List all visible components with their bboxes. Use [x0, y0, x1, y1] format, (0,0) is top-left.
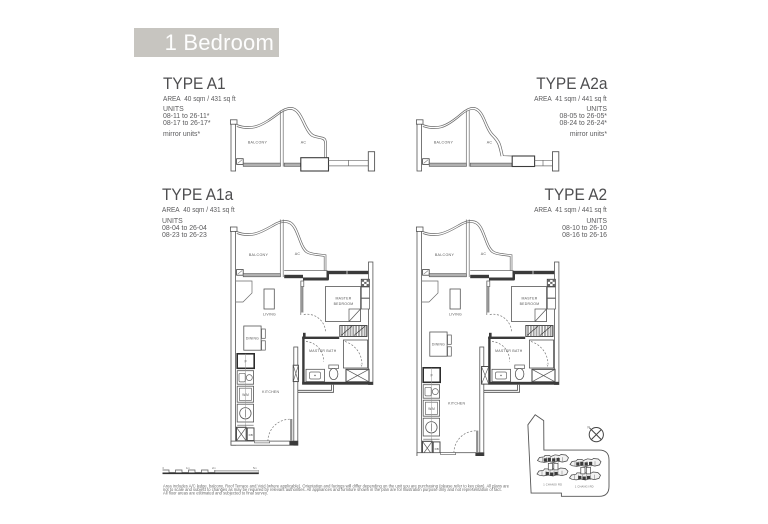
- svg-text:1m: 1m: [186, 466, 190, 470]
- svg-text:MASTER: MASTER: [335, 297, 351, 301]
- svg-text:AC: AC: [481, 252, 487, 256]
- svg-text:MASTER BATH: MASTER BATH: [309, 349, 337, 353]
- svg-text:BALCONY: BALCONY: [435, 253, 455, 257]
- svg-text:2m: 2m: [212, 466, 216, 470]
- svg-text:LIVING: LIVING: [449, 313, 462, 317]
- svg-text:KITCHEN: KITCHEN: [262, 390, 279, 394]
- svg-text:0: 0: [163, 466, 165, 470]
- svg-text:LIVING: LIVING: [263, 313, 276, 317]
- svg-text:AC: AC: [487, 141, 493, 145]
- svg-text:DB: DB: [249, 433, 253, 437]
- svg-text:BALCONY: BALCONY: [249, 253, 269, 257]
- svg-text:BEDROOM: BEDROOM: [334, 302, 354, 306]
- svg-text:BALCONY: BALCONY: [434, 141, 454, 145]
- svg-text:DINING: DINING: [432, 343, 445, 347]
- svg-text:AC: AC: [301, 141, 307, 145]
- svg-text:1 CHANGI RD: 1 CHANGI RD: [543, 482, 562, 486]
- svg-text:AC: AC: [295, 252, 301, 256]
- svg-text:5m: 5m: [253, 466, 257, 470]
- svg-text:MASTER BATH: MASTER BATH: [495, 349, 523, 353]
- svg-text:DB: DB: [435, 447, 439, 451]
- svg-text:1 CHANGI RD: 1 CHANGI RD: [575, 484, 594, 488]
- svg-text:KITCHEN: KITCHEN: [448, 402, 465, 406]
- svg-text:MASTER: MASTER: [521, 297, 537, 301]
- svg-text:BEDROOM: BEDROOM: [520, 302, 540, 306]
- svg-text:DINING: DINING: [246, 337, 259, 341]
- svg-text:BALCONY: BALCONY: [248, 141, 268, 145]
